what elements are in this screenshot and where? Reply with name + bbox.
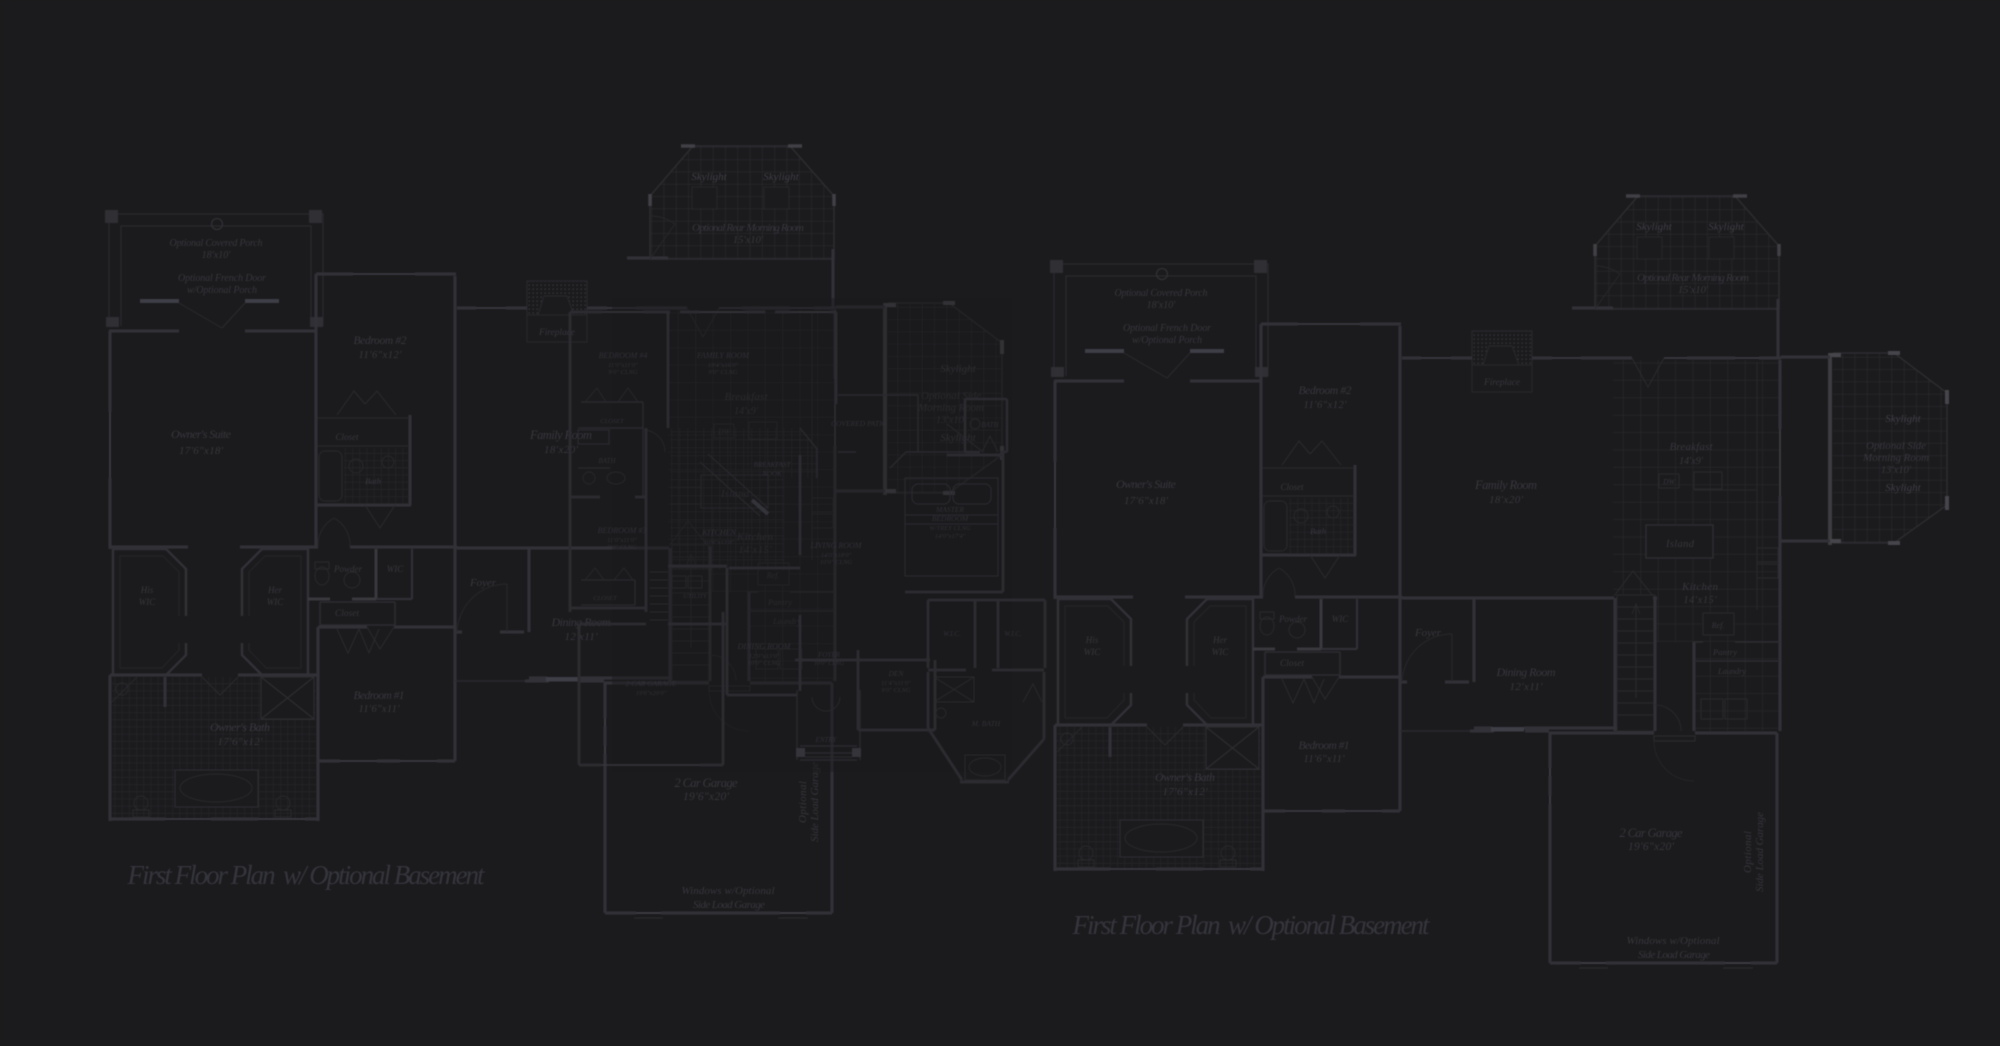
svg-text:9'0" CLNG: 9'0" CLNG bbox=[708, 369, 738, 376]
svg-text:BATH: BATH bbox=[981, 421, 999, 429]
svg-text:COVERED PATIO: COVERED PATIO bbox=[831, 419, 888, 428]
svg-text:BEDROOM #3: BEDROOM #3 bbox=[598, 526, 647, 535]
svg-text:11'0"x11'0": 11'0"x11'0" bbox=[607, 537, 637, 544]
svg-text:10'0" CLNG: 10'0" CLNG bbox=[814, 661, 845, 667]
svg-text:9'0" CLNG: 9'0" CLNG bbox=[607, 544, 637, 551]
svg-text:19'4"x16'0": 19'4"x16'0" bbox=[708, 362, 739, 369]
svg-text:BATH: BATH bbox=[598, 457, 616, 465]
svg-text:12'0"x13'0": 12'0"x13'0" bbox=[749, 653, 780, 660]
svg-text:BEDROOM #4: BEDROOM #4 bbox=[599, 351, 648, 360]
svg-text:W.I.C.: W.I.C. bbox=[1004, 630, 1022, 638]
svg-text:BREAKFAST: BREAKFAST bbox=[754, 461, 792, 469]
svg-text:KITCHEN: KITCHEN bbox=[701, 528, 736, 537]
svg-text:10'0"x13'0": 10'0"x13'0" bbox=[704, 539, 735, 546]
svg-text:9'0" CLNG: 9'0" CLNG bbox=[608, 369, 638, 376]
svg-text:DINING ROOM: DINING ROOM bbox=[737, 642, 792, 651]
svg-text:14'0"x18'0": 14'0"x18'0" bbox=[821, 552, 852, 559]
svg-text:LIVING ROOM: LIVING ROOM bbox=[810, 541, 863, 550]
svg-text:11'4"x11'0": 11'4"x11'0" bbox=[881, 680, 911, 687]
svg-text:14'0"x17'4": 14'0"x17'4" bbox=[935, 533, 966, 540]
svg-text:MASTER: MASTER bbox=[935, 505, 964, 514]
svg-text:CLOSET: CLOSET bbox=[600, 418, 624, 425]
svg-text:FOYER: FOYER bbox=[817, 651, 841, 659]
svg-text:DEN: DEN bbox=[888, 669, 905, 678]
svg-text:2 CAR GARAGE: 2 CAR GARAGE bbox=[626, 679, 677, 688]
svg-text:11'0"x11'0": 11'0"x11'0" bbox=[608, 362, 638, 369]
svg-text:UTILITY: UTILITY bbox=[683, 593, 708, 600]
svg-text:9'0" CLNG: 9'0" CLNG bbox=[881, 687, 911, 694]
svg-text:10'0" CLNG: 10'0" CLNG bbox=[748, 660, 781, 667]
svg-text:19'6"x20'0": 19'6"x20'0" bbox=[636, 690, 667, 697]
svg-text:W/TREY CLNG: W/TREY CLNG bbox=[930, 525, 971, 532]
svg-text:NOOK: NOOK bbox=[761, 470, 782, 478]
svg-text:W.I.C.: W.I.C. bbox=[943, 630, 961, 638]
svg-text:CLOSET: CLOSET bbox=[593, 595, 617, 602]
svg-text:FAMILY ROOM: FAMILY ROOM bbox=[696, 351, 750, 360]
svg-text:BEDROOM: BEDROOM bbox=[932, 514, 969, 523]
svg-text:M. BATH: M. BATH bbox=[971, 719, 1001, 728]
svg-text:ENTRY: ENTRY bbox=[815, 736, 838, 744]
svg-text:10'0" CLNG: 10'0" CLNG bbox=[820, 559, 853, 566]
